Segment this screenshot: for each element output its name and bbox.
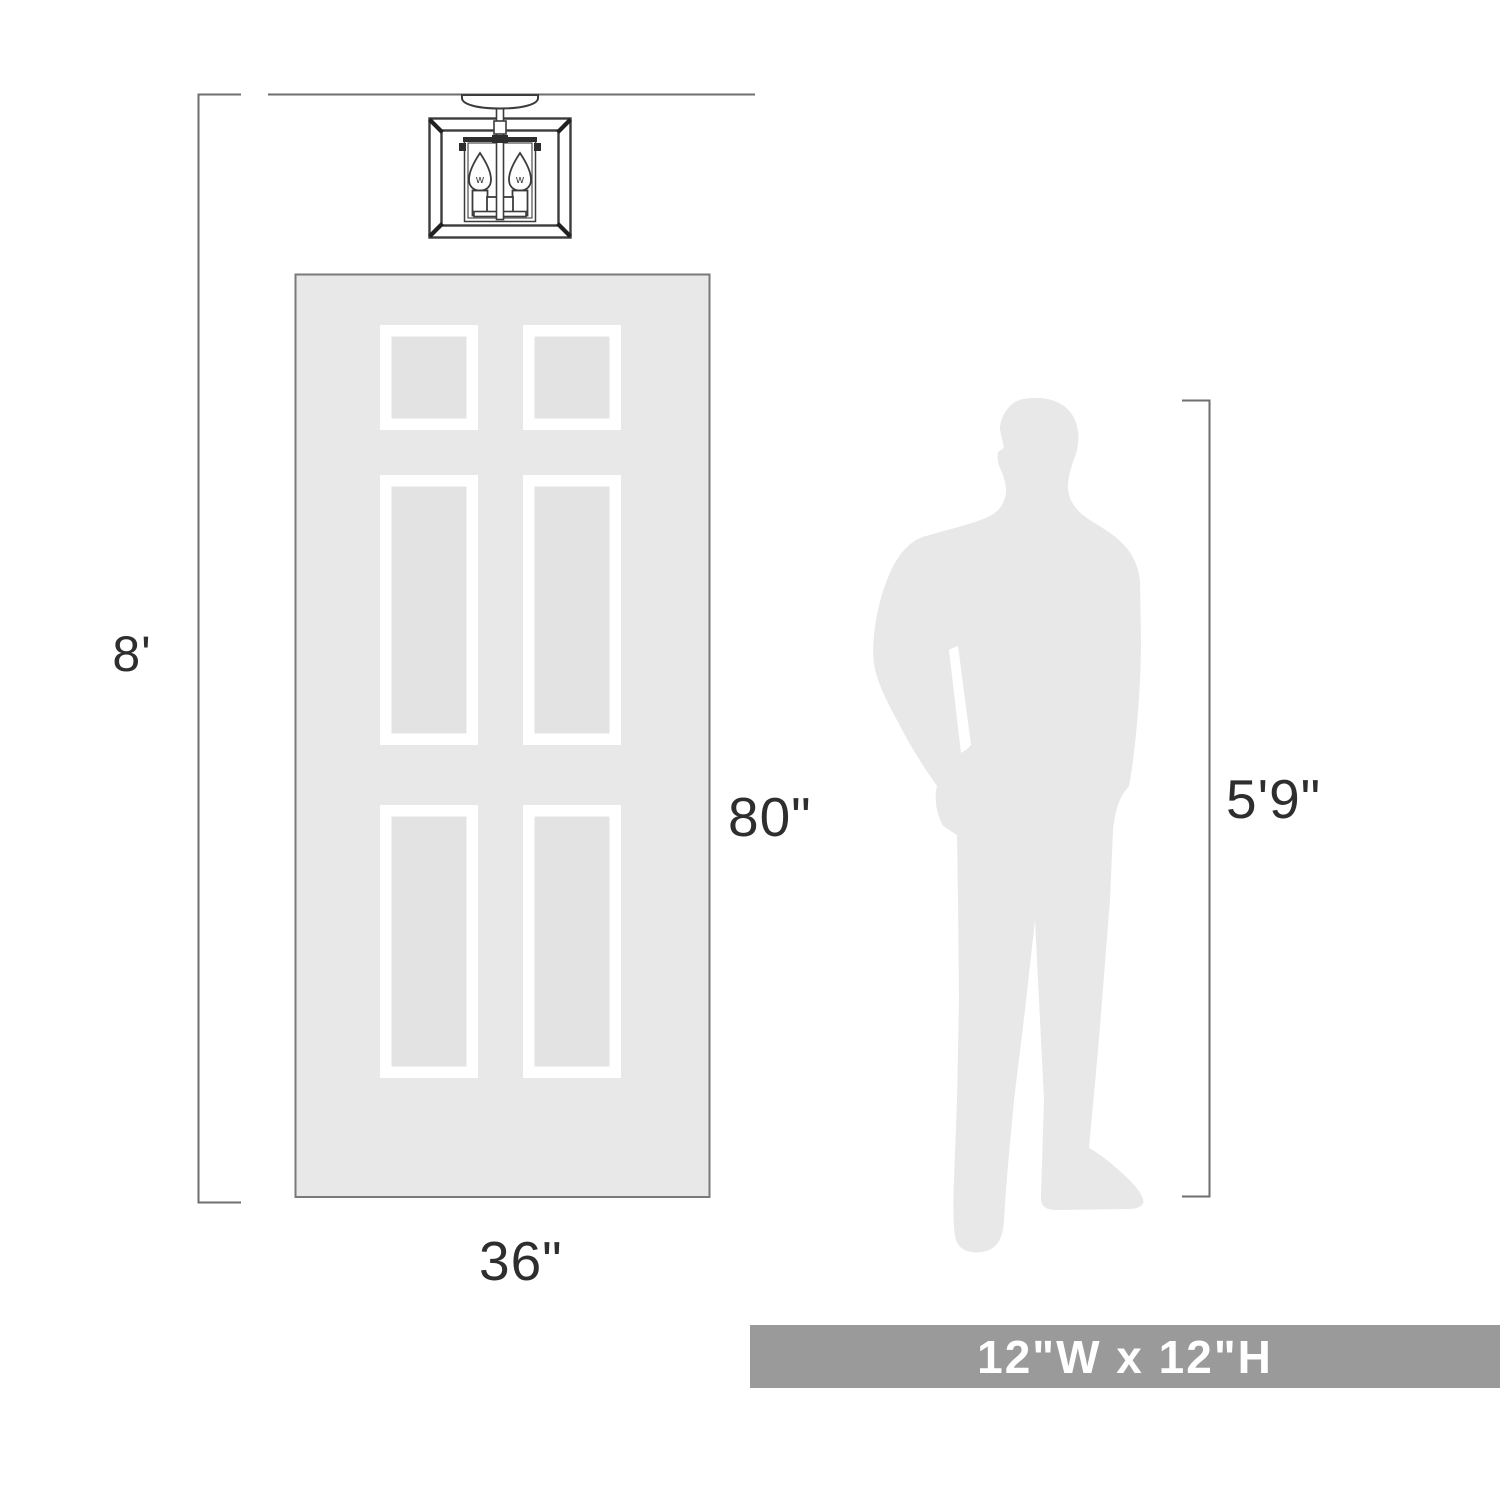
- ceiling-height-dimension-line: [199, 95, 242, 1203]
- door-panel-middle-left: [380, 475, 478, 745]
- person-silhouette: [873, 398, 1143, 1252]
- diagram-artwork: w w: [0, 0, 1500, 1500]
- size-banner-text: 12"W x 12"H: [977, 1330, 1273, 1384]
- fixture-stem-collar: [494, 121, 506, 134]
- ceiling-height-label: 8': [92, 629, 172, 679]
- silhouette-body: [873, 398, 1143, 1252]
- door-panel-bottom-left: [380, 805, 478, 1078]
- door-drawing: [296, 275, 710, 1198]
- bulb-wattage-letter: w: [515, 174, 524, 186]
- size-banner: 12"W x 12"H: [750, 1325, 1500, 1388]
- fixture-cage-mount: [492, 135, 508, 143]
- person-height-label: 5'9": [1226, 772, 1321, 827]
- door-slab: [296, 275, 710, 1198]
- door-width-label: 36": [479, 1234, 563, 1289]
- door-panel-top-left: [380, 325, 478, 430]
- fixture-canopy: [462, 95, 538, 109]
- door-height-label: 80": [728, 790, 812, 845]
- door-panel-middle-right: [523, 475, 621, 745]
- door-panel-bottom-right: [523, 805, 621, 1078]
- bulb-wattage-letter: w: [475, 174, 484, 186]
- dimension-diagram: w w 8' 80" 36" 5'9" 12"W x 12"H: [0, 0, 1500, 1500]
- door-panel-top-right: [523, 325, 621, 430]
- light-fixture-drawing: w w: [430, 95, 571, 238]
- person-height-dimension-line: [1182, 401, 1210, 1197]
